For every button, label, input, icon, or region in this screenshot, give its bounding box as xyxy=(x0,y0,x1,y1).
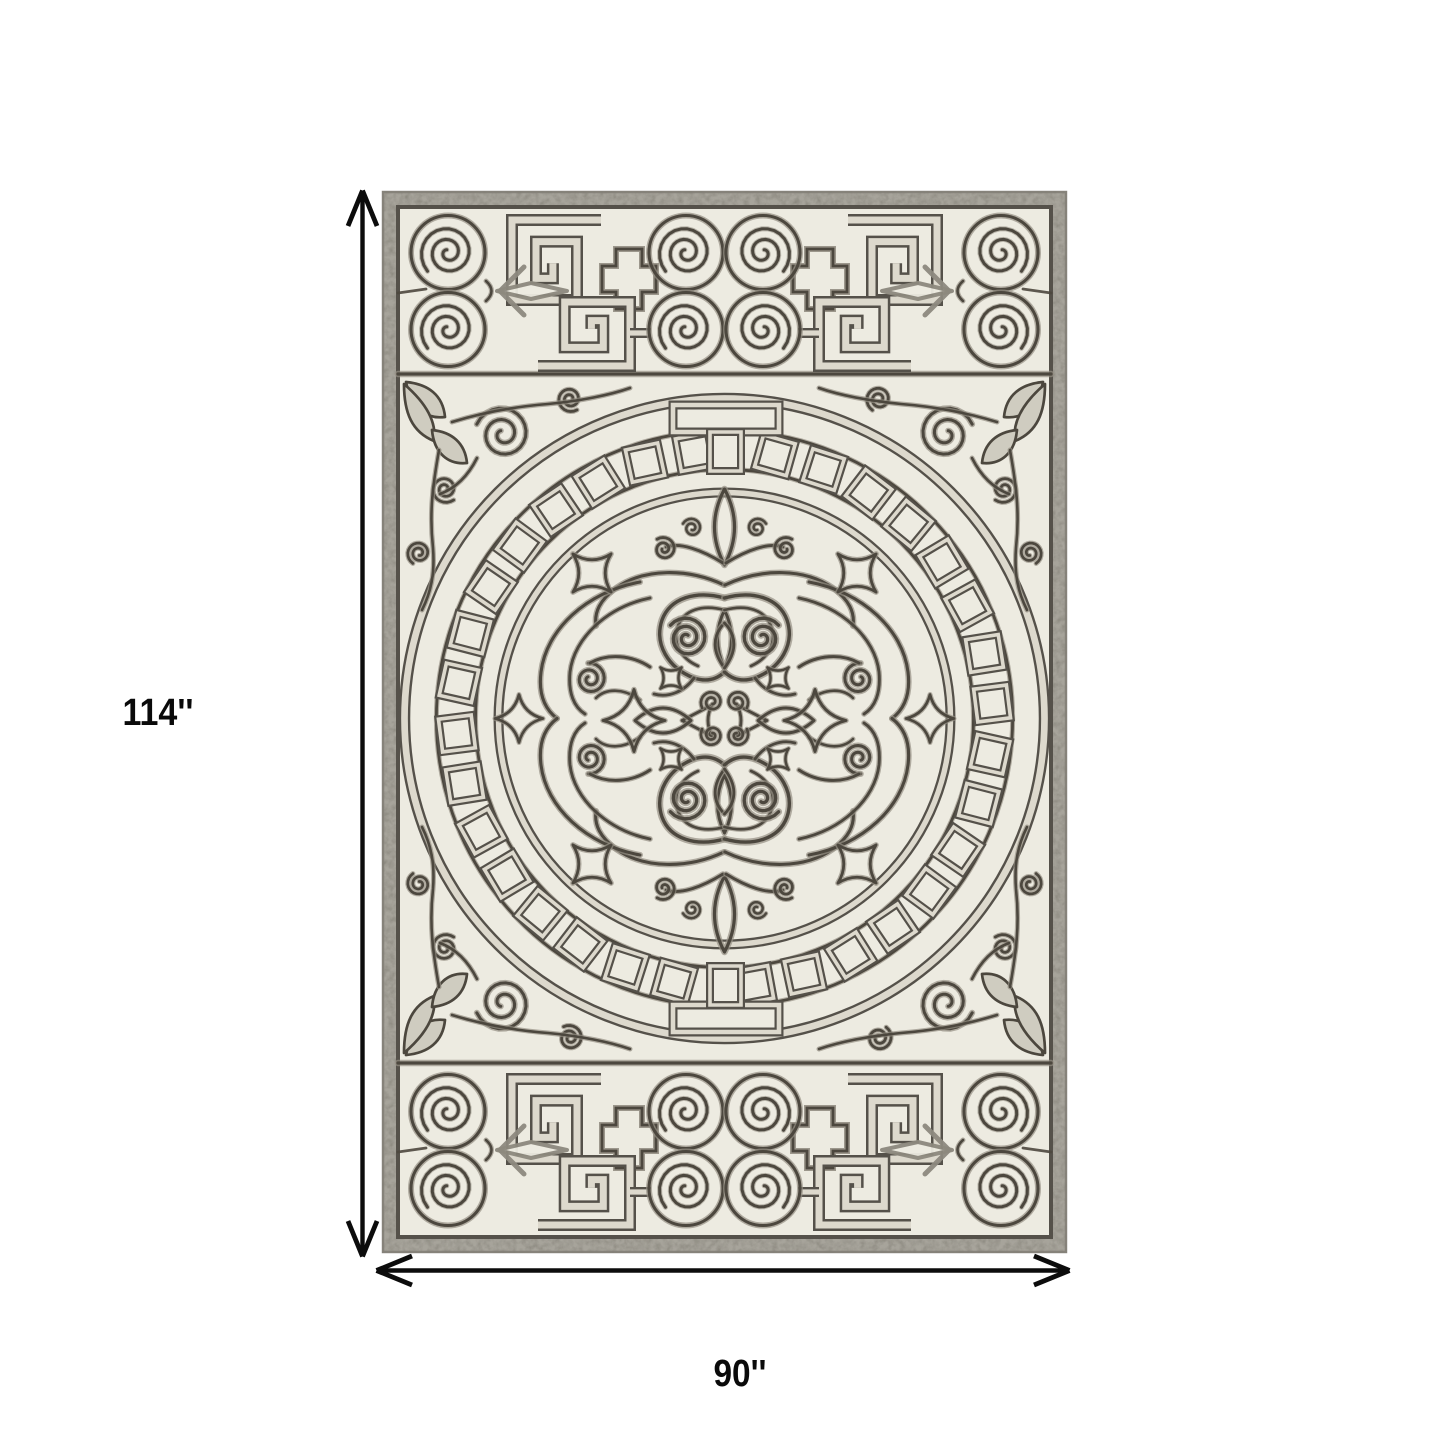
svg-text:90'': 90'' xyxy=(714,1353,767,1395)
svg-text:114'': 114'' xyxy=(123,692,194,734)
